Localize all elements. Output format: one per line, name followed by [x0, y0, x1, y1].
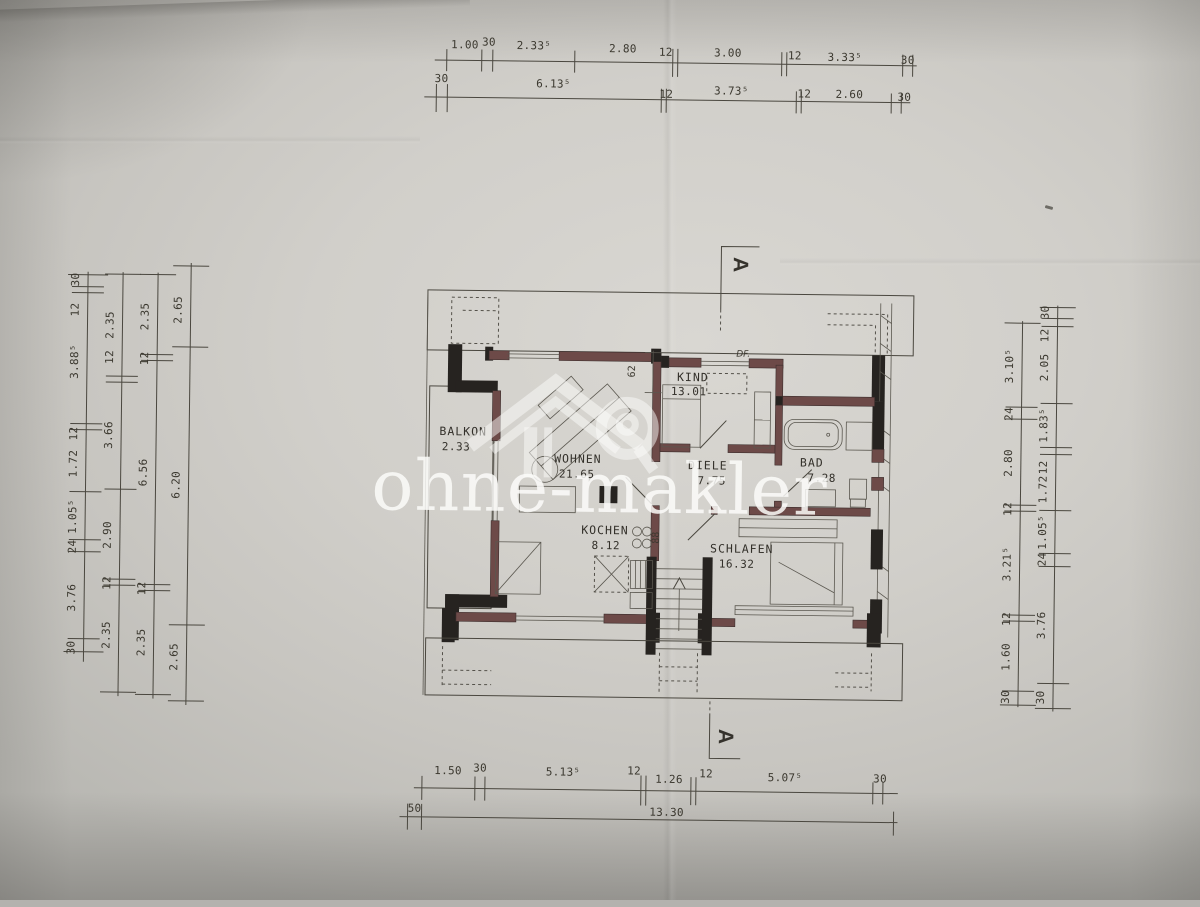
dim-label: 2.80 [1002, 449, 1015, 477]
dim-label: 12 [1001, 502, 1014, 516]
dim-label: 1.00 [451, 38, 479, 51]
staircase [655, 569, 703, 696]
dim-label: 1.50 [434, 764, 462, 777]
roof-window-dashed [707, 373, 747, 393]
dim-label: 12 [1037, 460, 1050, 474]
dim-label: 5.07⁵ [768, 771, 803, 784]
dim-label: 2.60 [835, 88, 863, 101]
right-wall-band [870, 303, 892, 637]
section-letter-bottom: A [714, 729, 737, 744]
dim-label: 1.72 [1036, 475, 1049, 503]
dim-label: 30 [897, 91, 911, 104]
watermark: ohne-makler [371, 379, 829, 532]
top-dimension-row-2: 30 6.13⁵ 12 3.73⁵ 12 2.60 30 [424, 72, 911, 118]
dim-label: 2.35 [138, 303, 151, 331]
dim-label: 3.21⁵ [1000, 547, 1013, 582]
dim-label: 24 [66, 539, 79, 553]
dim-label: 2.35 [100, 621, 113, 649]
dim-label: 12 [103, 350, 116, 364]
dim-label: 2.65 [172, 296, 185, 324]
dim-label: 12 [100, 576, 113, 590]
dim-label: 1.05⁵ [1036, 515, 1049, 550]
dim-label: 12 [659, 88, 673, 101]
dim-label: 1.72 [67, 450, 80, 478]
dim-label: 2.35 [103, 311, 116, 339]
dim-label: 3.00 [714, 46, 742, 59]
left-dimension-chain-4: 2.65 6.20 2.65 [167, 263, 209, 705]
dim-label: 30 [1039, 305, 1052, 319]
dim-label: 12 [797, 87, 811, 100]
dim-62-label: 62 [627, 365, 638, 377]
dim-label: 6.13⁵ [536, 77, 571, 90]
dim-label: 30 [901, 54, 915, 67]
drawing-sheet: 1.00 30 2.33⁵ 2.80 12 3.00 12 3.33⁵ 30 3… [0, 0, 1200, 907]
bottom-dimension-row-1: 1.50 30 5.13⁵ 12 1.26 12 5.07⁵ 30 [414, 761, 898, 809]
dim-label: 3.76 [1035, 611, 1048, 639]
dim-label: 6.20 [169, 471, 182, 499]
right-dimension-chain-outer: 30 12 2.05 1.83⁵ 12 1.72 1.05⁵ 24 3.76 3… [1034, 305, 1076, 711]
watermark-text: ohne-makler [371, 444, 828, 532]
dim-label: 2.65 [167, 643, 180, 671]
dim-label: 12 [1038, 328, 1051, 342]
dim-label: 3.76 [65, 584, 78, 612]
dim-label: 12 [699, 767, 713, 780]
dim-label: 30 [69, 273, 82, 287]
dim-label: 12 [69, 303, 82, 317]
dim-label: 12 [1000, 612, 1013, 626]
dim-label: 5.13⁵ [546, 765, 581, 778]
roof-window-label: DF. [736, 350, 750, 360]
dim-label: 3.66 [102, 421, 115, 449]
floor-plan-drawing: 1.00 30 2.33⁵ 2.80 12 3.00 12 3.33⁵ 30 3… [0, 0, 1200, 907]
room-name-kind: KIND [677, 370, 709, 384]
roof-band-bottom [425, 638, 903, 701]
section-marker-top: A [720, 246, 759, 331]
dim-label: 24 [1002, 407, 1015, 421]
dim-label: 12 [67, 427, 80, 441]
dim-label: 1.05⁵ [66, 499, 79, 534]
dim-label: 2.35 [134, 628, 147, 656]
left-dimension-chain-1: 30 12 3.88⁵ 12 1.72 1.05⁵ 24 3.76 30 [63, 271, 108, 661]
room-name-schlafen: SCHLAFEN [710, 541, 774, 556]
dim-label: 30 [64, 641, 77, 655]
dim-label: 1.60 [999, 643, 1012, 671]
photographed-floor-plan: 1.00 30 2.33⁵ 2.80 12 3.00 12 3.33⁵ 30 3… [0, 0, 1200, 900]
dim-88-label: 88 [651, 532, 662, 544]
dim-label: 12 [627, 764, 641, 777]
dim-label: 12 [138, 351, 151, 365]
room-area-kochen: 8.12 [592, 539, 621, 552]
dim-label: 1.83⁵ [1037, 408, 1050, 443]
dim-label: 24 [1036, 552, 1049, 566]
dim-label: 30 [435, 72, 449, 85]
room-area-kind: 13.01 [671, 385, 707, 398]
dim-label: 3.88⁵ [68, 344, 81, 379]
dim-label: 30 [999, 690, 1012, 704]
dim-label: 30 [473, 761, 487, 774]
dim-label: 2.90 [101, 521, 114, 549]
dim-label: 2.33⁵ [517, 39, 552, 52]
dim-label: 3.73⁵ [714, 84, 749, 97]
dim-label: 2.05 [1038, 353, 1051, 381]
top-dimension-row-1: 1.00 30 2.33⁵ 2.80 12 3.00 12 3.33⁵ 30 [435, 35, 917, 80]
section-letter-top: A [729, 257, 752, 272]
dim-label: 13.30 [649, 806, 684, 819]
bottom-dimension-row-2: 50 13.30 [399, 802, 897, 836]
dim-label: 30 [482, 36, 496, 49]
room-area-schlafen: 16.32 [719, 557, 755, 570]
dim-label: 6.56 [137, 458, 150, 486]
dim-label: 30 [1034, 690, 1047, 704]
right-dimension-chain-inner: 3.10⁵ 24 2.80 12 3.21⁵ 12 1.60 30 [999, 321, 1041, 707]
dim-label: 12 [135, 581, 148, 595]
dim-label: 3.33⁵ [827, 51, 862, 64]
dim-label: 50 [408, 802, 422, 815]
section-marker-bottom: A [709, 701, 741, 758]
dim-label: 12 [788, 49, 802, 62]
dim-label: 30 [873, 772, 887, 785]
dim-label: 1.26 [655, 773, 683, 786]
dim-label: 3.10⁵ [1003, 349, 1016, 384]
dim-label: 12 [659, 46, 673, 59]
dim-label: 2.80 [609, 42, 637, 55]
